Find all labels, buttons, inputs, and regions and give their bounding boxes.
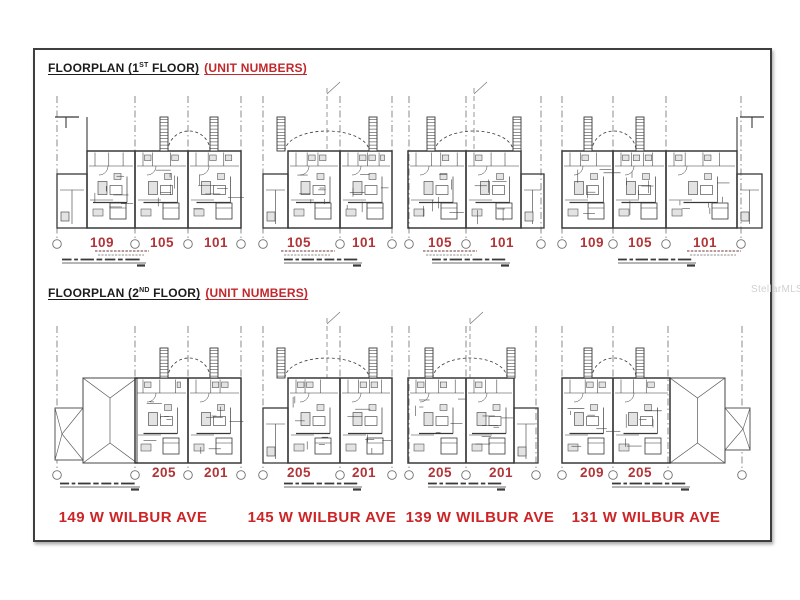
unit-number-label: 109 — [580, 235, 604, 250]
grid-bubble — [259, 240, 268, 249]
floorplan-f2-b2: 205201 — [259, 312, 397, 490]
grid-bubble — [537, 240, 546, 249]
unit-number-label: 201 — [204, 465, 228, 480]
grid-bubble — [388, 240, 397, 249]
grid-bubble — [53, 471, 62, 480]
floorplan-f1-b1: 109105101 — [53, 96, 246, 266]
unit-number-label: 201 — [489, 465, 513, 480]
address-131: 131 W WILBUR AVE — [572, 509, 721, 526]
grid-bubble — [237, 471, 246, 480]
grid-bubble — [532, 471, 541, 480]
title-floor2-main: FLOORPLAN (2ND FLOOR) — [48, 286, 200, 300]
address-145: 145 W WILBUR AVE — [248, 509, 397, 526]
unit-number-label: 101 — [204, 235, 228, 250]
unit-number-label: 109 — [90, 235, 114, 250]
grid-bubble — [388, 471, 397, 480]
grid-bubble — [184, 240, 193, 249]
grid-bubble — [131, 240, 140, 249]
grid-bubble — [737, 240, 746, 249]
unit-number-label: 101 — [693, 235, 717, 250]
unit-number-label: 101 — [352, 235, 376, 250]
unit-number-label: 105 — [287, 235, 311, 250]
unit-number-label: 205 — [287, 465, 311, 480]
grid-bubble — [336, 240, 345, 249]
grid-bubble — [405, 240, 414, 249]
title-floor1-highlight: (UNIT NUMBERS) — [204, 61, 307, 75]
grid-bubble — [237, 240, 246, 249]
grid-bubble — [558, 240, 567, 249]
grid-bubble — [462, 471, 471, 480]
address-139: 139 W WILBUR AVE — [406, 509, 555, 526]
grid-bubble — [184, 471, 193, 480]
grid-bubble — [131, 471, 140, 480]
floorplan-f2-b1: 205201 — [53, 326, 246, 490]
grid-bubble — [662, 240, 671, 249]
grid-bubble — [259, 471, 268, 480]
unit-number-label: 105 — [428, 235, 452, 250]
floorplan-f1-b2: 105101 — [259, 82, 397, 266]
floorplan-sheet-page: { "titles": { "floor1": {"prefix": "FLOO… — [0, 0, 800, 600]
unit-number-label: 205 — [628, 465, 652, 480]
unit-number-label: 105 — [150, 235, 174, 250]
ordinal-superscript: ND — [139, 287, 150, 294]
unit-number-label: 101 — [490, 235, 514, 250]
unit-number-label: 201 — [352, 465, 376, 480]
title-floor1-main: FLOORPLAN (1ST FLOOR) — [48, 61, 199, 75]
grid-bubble — [336, 471, 345, 480]
floorplan-f1-b3: 105101 — [405, 82, 546, 266]
title-floor2: FLOORPLAN (2ND FLOOR)(UNIT NUMBERS) — [48, 286, 308, 300]
grid-bubble — [609, 471, 618, 480]
title-floor2-highlight: (UNIT NUMBERS) — [205, 286, 308, 300]
title-floor1: FLOORPLAN (1ST FLOOR)(UNIT NUMBERS) — [48, 61, 307, 75]
grid-bubble — [462, 240, 471, 249]
unit-number-label: 205 — [428, 465, 452, 480]
floorplan-f1-b4: 109105101 — [558, 96, 764, 266]
floorplan-f2-b4: 209205 — [558, 326, 750, 490]
grid-bubble — [558, 471, 567, 480]
grid-bubble — [53, 240, 62, 249]
grid-bubble — [738, 471, 747, 480]
grid-bubble — [405, 471, 414, 480]
address-149: 149 W WILBUR AVE — [59, 509, 208, 526]
grid-bubble — [609, 240, 618, 249]
grid-bubble — [664, 471, 673, 480]
unit-number-label: 205 — [152, 465, 176, 480]
stellar-mls-watermark: StellarMLS — [751, 284, 800, 295]
unit-number-label: 105 — [628, 235, 652, 250]
floorplan-f2-b3: 205201 — [405, 312, 541, 490]
unit-number-label: 209 — [580, 465, 604, 480]
